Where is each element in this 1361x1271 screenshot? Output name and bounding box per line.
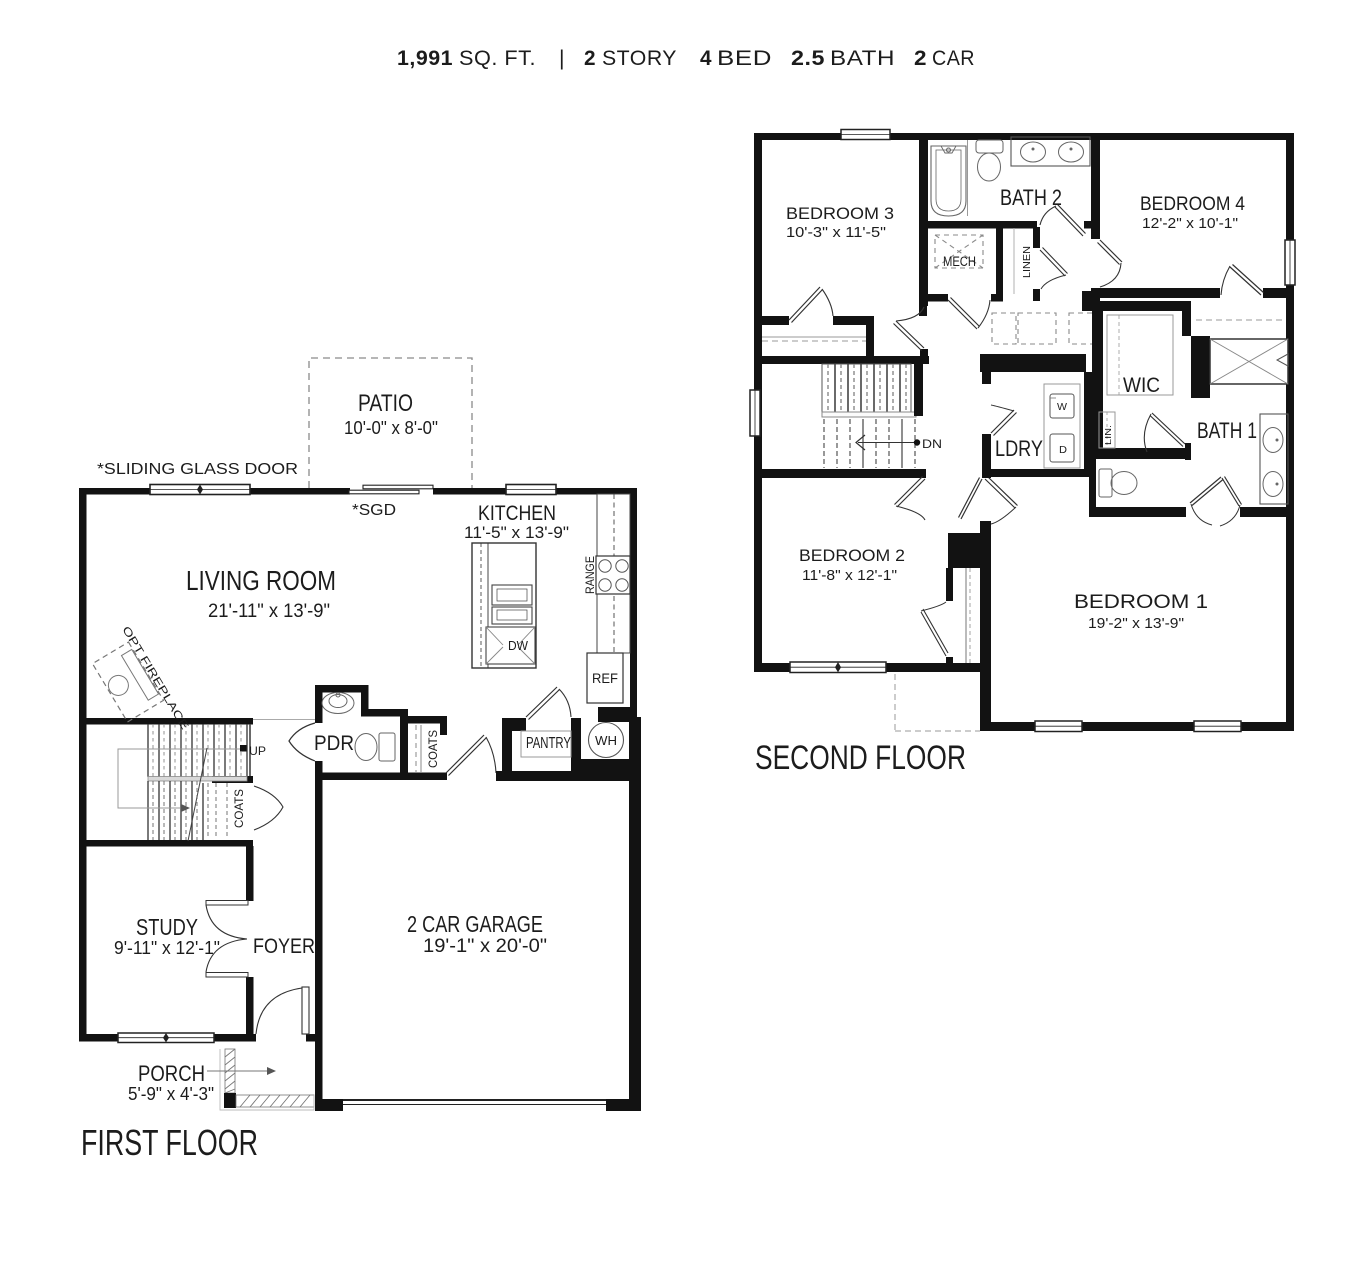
svg-text:LIN.: LIN. [1103, 425, 1113, 445]
svg-text:CAR: CAR [932, 45, 975, 70]
svg-text:5'-9" x 4'-3": 5'-9" x 4'-3" [128, 1084, 214, 1104]
svg-text:10'-0" x 8'-0": 10'-0" x 8'-0" [344, 418, 438, 438]
svg-text:DW: DW [508, 638, 529, 653]
svg-text:21'-11" x 13'-9": 21'-11" x 13'-9" [208, 600, 330, 622]
svg-text:|: | [559, 45, 565, 70]
svg-text:BEDROOM 4: BEDROOM 4 [1140, 193, 1245, 215]
svg-text:BEDROOM 2: BEDROOM 2 [799, 546, 905, 565]
svg-text:2: 2 [914, 45, 927, 70]
svg-text:WIC: WIC [1123, 374, 1160, 397]
svg-text:BATH 2: BATH 2 [1000, 185, 1062, 210]
svg-text:19'-1" x 20'-0": 19'-1" x 20'-0" [423, 935, 547, 957]
svg-text:*SLIDING GLASS DOOR: *SLIDING GLASS DOOR [97, 461, 298, 478]
svg-text:1,991: 1,991 [397, 45, 453, 70]
svg-text:W: W [1057, 402, 1068, 413]
svg-text:PORCH: PORCH [138, 1061, 205, 1086]
svg-text:COATS: COATS [428, 730, 440, 768]
svg-text:PANTRY: PANTRY [526, 735, 571, 752]
svg-text:SECOND FLOOR: SECOND FLOOR [755, 739, 966, 777]
svg-text:DN: DN [922, 439, 942, 451]
svg-text:10'-3" x 11'-5": 10'-3" x 11'-5" [786, 225, 886, 241]
svg-text:2.5: 2.5 [791, 45, 825, 70]
svg-text:FOYER: FOYER [253, 935, 315, 958]
svg-text:11'-5" x 13'-9": 11'-5" x 13'-9" [464, 523, 569, 542]
svg-text:STORY: STORY [602, 45, 677, 70]
svg-text:KITCHEN: KITCHEN [478, 501, 556, 525]
svg-text:REF: REF [592, 670, 618, 686]
svg-text:9'-11" x 12'-1": 9'-11" x 12'-1" [114, 938, 220, 958]
svg-text:11'-8" x 12'-1": 11'-8" x 12'-1" [802, 568, 897, 584]
svg-text:PATIO: PATIO [358, 390, 413, 417]
svg-text:FIRST FLOOR: FIRST FLOOR [81, 1122, 258, 1163]
svg-text:BED: BED [717, 45, 772, 70]
svg-text:BEDROOM 3: BEDROOM 3 [786, 204, 894, 223]
svg-text:BEDROOM 1: BEDROOM 1 [1074, 591, 1208, 613]
svg-text:COATS: COATS [232, 789, 246, 828]
svg-text:19'-2" x 13'-9": 19'-2" x 13'-9" [1088, 615, 1184, 632]
svg-text:LINEN: LINEN [1022, 246, 1033, 278]
svg-text:RANGE: RANGE [585, 556, 597, 594]
svg-text:4: 4 [700, 45, 712, 70]
svg-text:LIVING ROOM: LIVING ROOM [186, 565, 336, 596]
svg-text:MECH: MECH [943, 254, 976, 269]
svg-text:LDRY: LDRY [995, 436, 1043, 461]
svg-text:UP: UP [249, 746, 266, 758]
svg-text:2 CAR GARAGE: 2 CAR GARAGE [407, 911, 543, 937]
svg-text:*SGD: *SGD [352, 502, 396, 519]
svg-text:2: 2 [584, 45, 596, 70]
svg-text:WH: WH [595, 733, 617, 748]
svg-text:BATH 1: BATH 1 [1197, 418, 1257, 443]
svg-text:D: D [1059, 445, 1067, 456]
svg-text:12'-2" x 10'-1": 12'-2" x 10'-1" [1142, 215, 1238, 232]
svg-text:BATH: BATH [830, 45, 895, 70]
svg-text:STUDY: STUDY [136, 914, 198, 940]
svg-text:PDR: PDR [314, 732, 354, 755]
svg-text:SQ. FT.: SQ. FT. [459, 45, 536, 70]
